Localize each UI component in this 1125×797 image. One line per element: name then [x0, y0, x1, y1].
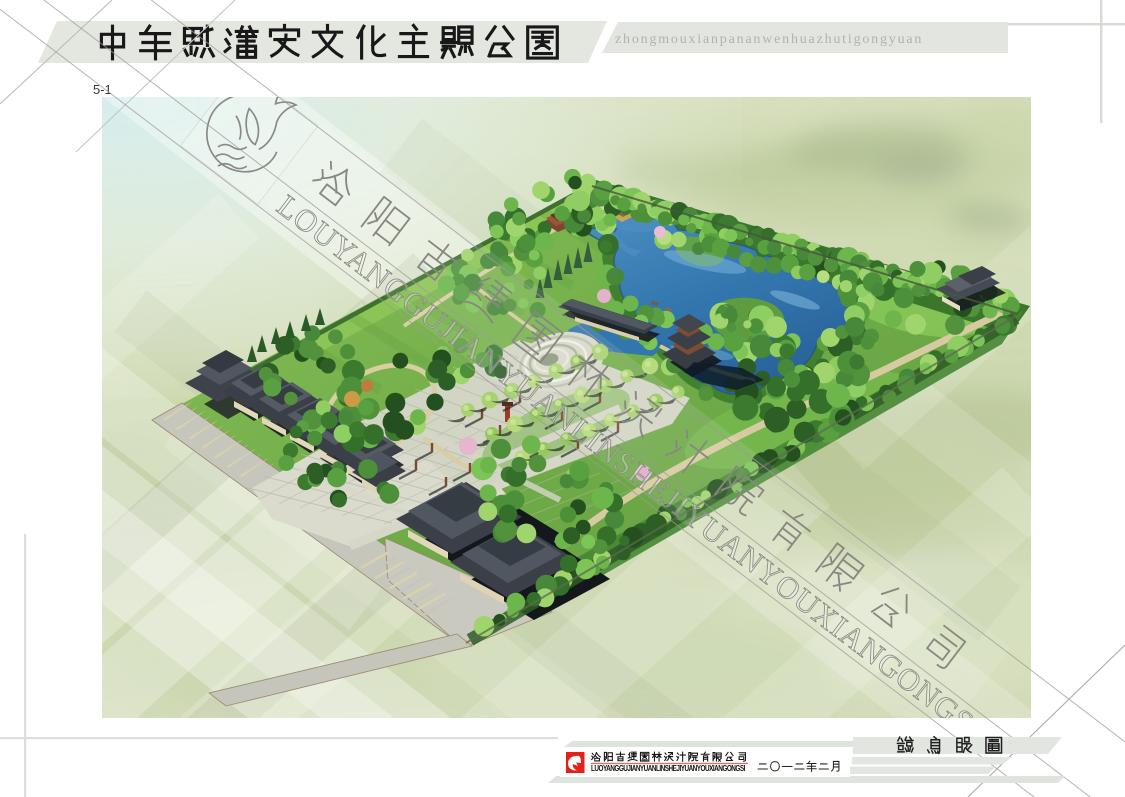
svg-text:zhongmouxianpananwenhuazhutigo: zhongmouxianpananwenhuazhutigongyuan [615, 32, 923, 47]
svg-text:LUOYANGGUJIANYUANLINSHEJIYUANY: LUOYANGGUJIANYUANLINSHEJIYUANYOUXIANGONG… [591, 763, 745, 773]
svg-text:5-1: 5-1 [93, 82, 112, 97]
